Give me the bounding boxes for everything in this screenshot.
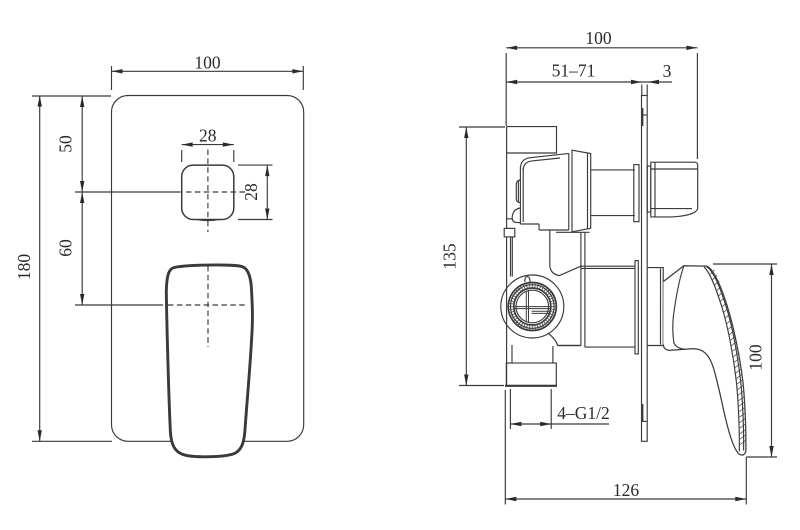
svg-text:100: 100: [194, 53, 221, 73]
svg-text:100: 100: [746, 344, 766, 371]
svg-text:100: 100: [585, 28, 612, 48]
svg-text:3: 3: [663, 61, 672, 81]
svg-text:135: 135: [440, 243, 460, 270]
svg-text:50: 50: [56, 135, 76, 153]
svg-text:180: 180: [14, 254, 34, 281]
svg-text:51–71: 51–71: [552, 61, 596, 81]
svg-text:60: 60: [56, 239, 76, 257]
svg-text:28: 28: [199, 126, 217, 146]
svg-text:126: 126: [613, 480, 640, 500]
svg-text:4–G1/2: 4–G1/2: [557, 403, 610, 423]
